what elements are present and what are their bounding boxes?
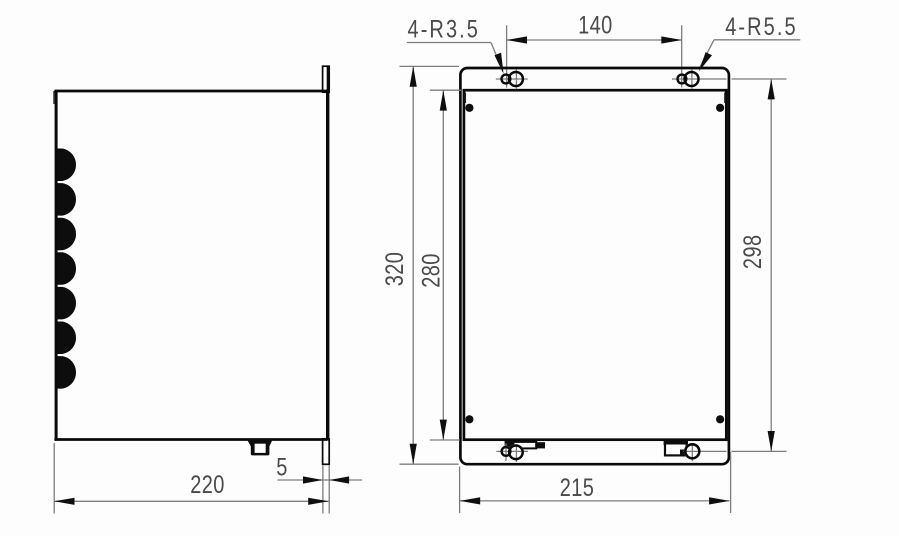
svg-text:140: 140 xyxy=(578,12,613,40)
svg-text:298: 298 xyxy=(739,235,767,270)
svg-text:215: 215 xyxy=(560,474,595,502)
svg-text:320: 320 xyxy=(381,252,409,287)
svg-text:5: 5 xyxy=(276,453,288,481)
svg-text:280: 280 xyxy=(417,253,445,288)
svg-text:220: 220 xyxy=(190,471,225,499)
svg-text:4-R3.5: 4-R3.5 xyxy=(408,16,480,44)
svg-text:4-R5.5: 4-R5.5 xyxy=(725,13,797,41)
